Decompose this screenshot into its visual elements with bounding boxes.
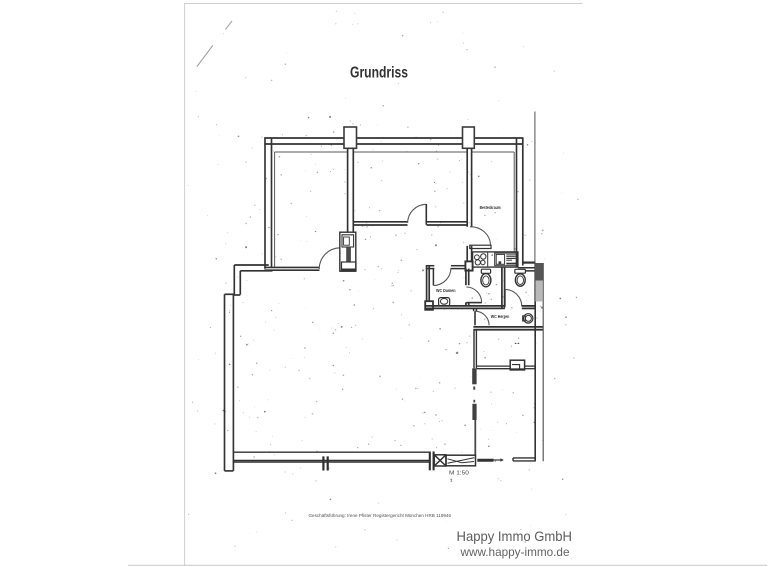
svg-text:www.happy-immo.de: www.happy-immo.de [460, 545, 570, 559]
svg-text:Geschäftsführung: Irene Pfiste: Geschäftsführung: Irene Pfister Register… [309, 513, 452, 519]
svg-text:WC Damen: WC Damen [436, 288, 456, 293]
svg-text:Happy Immo GmbH: Happy Immo GmbH [457, 529, 573, 544]
svg-text:Grundriss: Grundriss [350, 65, 408, 82]
svg-text:M 1:50: M 1:50 [449, 471, 469, 477]
svg-text:Besteckraum: Besteckraum [480, 205, 501, 210]
svg-text:WC Herren: WC Herren [491, 314, 510, 319]
